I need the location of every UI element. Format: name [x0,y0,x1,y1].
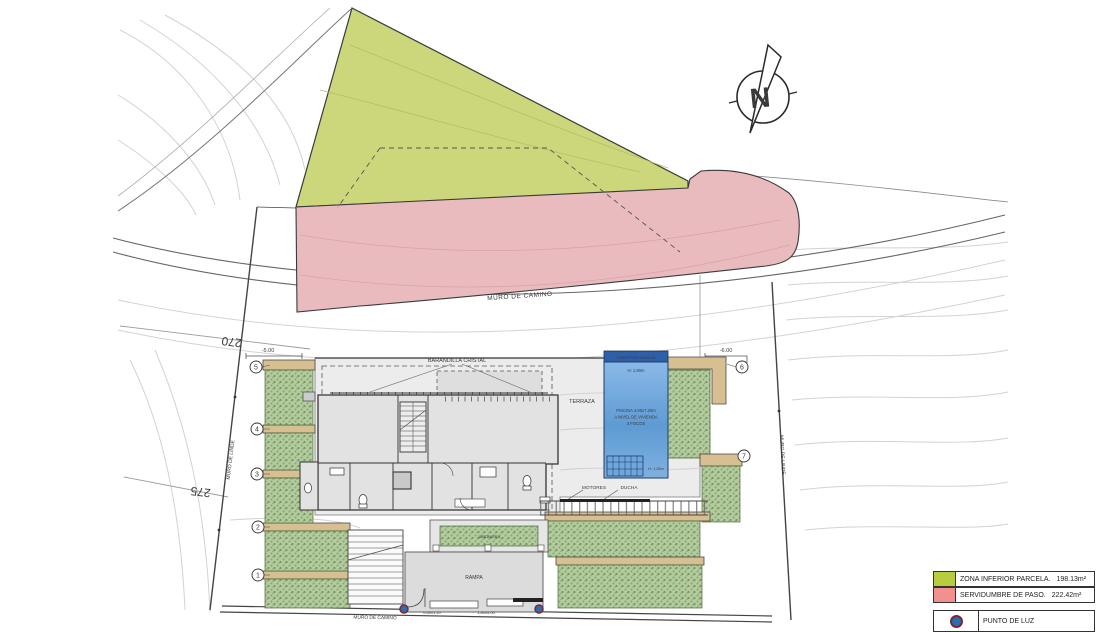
rampa-label: RAMPA [465,575,483,581]
legend-swatch-red [933,587,956,603]
marker-1: 1 [256,573,260,580]
marker-4: 4 [255,427,259,434]
legend-servidumbre-label: SERVIDUMBRE DE PASO. [960,592,1046,599]
pool-depth-shallow: H: 1.80m [628,368,646,373]
legend: ZONA INFERIOR PARCELA. 198.13m² SERVIDUM… [933,571,1095,632]
sink [330,468,344,475]
level-right: -6.00 [720,348,733,354]
barandilla-label: BARANDILLA CRISTAL [428,358,486,364]
house-staircase [400,402,426,452]
muro-linde-right-label: MURO DE LINDE [778,435,786,476]
north-arrow: N [729,45,797,133]
dim-gate-label: 1.80x4.00 [477,610,495,615]
legend-row-punto-luz: PUNTO DE LUZ [933,610,1095,632]
muro-linde-left-line [210,207,257,610]
jardinera-label: JARDINERA [478,534,501,539]
north-letter: N [748,81,771,114]
legend-servidumbre-area: 222.42m² [1052,592,1082,599]
motores-label: MOTORES [582,485,606,491]
house-outer-wall [318,395,558,510]
light-point-icon [535,605,543,613]
pool-title: PISCINA 4.00x7.20m [616,408,656,413]
legend-row-zona-inferior: ZONA INFERIOR PARCELA. 198.13m² [933,571,1095,587]
zona-inferior-parcela [296,8,688,207]
ramp [405,552,543,612]
marker-6: 6 [740,365,744,372]
sink [480,467,496,477]
bottom-right-planters [545,512,710,608]
legend-row-servidumbre: SERVIDUMBRE DE PASO. 222.42m² [933,587,1095,603]
kitchen-counter [455,499,485,507]
site-plan-drawing: 270 275 MURO DE CAMINO MURO DE LINDE [0,0,1110,626]
level-left: -5.00 [262,348,275,354]
pool-line3: 3 FOCOS [627,421,646,426]
site-plan-page: { "north": {"letter": "N"}, "contour_lab… [0,0,1110,626]
legend-zona-area: 198.13m² [1057,576,1087,583]
pool-depth-deep: H: 1.20m [648,467,663,471]
marker-3: 3 [255,472,259,479]
legend-swatch-green [933,571,956,587]
exterior-stairs [348,530,403,604]
dim-door-label: 0.60x1.20 [423,610,441,615]
muro-camino-bottom-label: MURO DE CAMINO [353,615,397,622]
marker-5: 5 [254,365,258,372]
contour-label-275: 275 [189,484,211,500]
toilet [305,483,312,493]
legend-zona-label: ZONA INFERIOR PARCELA. [960,576,1051,583]
shower-tray [393,472,411,489]
pool-cover-label: COBERTOR 4.00x0.40 [616,356,655,360]
marker-2: 2 [256,525,260,532]
light-point-icon [400,605,408,613]
marker-7: 7 [742,454,746,461]
toilet [523,476,531,487]
pool-line2: A NIVEL DE VIVIENDA [614,415,658,420]
ducha-label: DUCHA [620,485,638,491]
pool-steps [607,456,643,476]
legend-punto-luz-label: PUNTO DE LUZ [983,618,1034,625]
contour-label-270: 270 [220,334,242,350]
muro-linde-left-label: MURO DE LINDE [226,439,237,480]
terraza-label: TERRAZA [569,399,595,405]
